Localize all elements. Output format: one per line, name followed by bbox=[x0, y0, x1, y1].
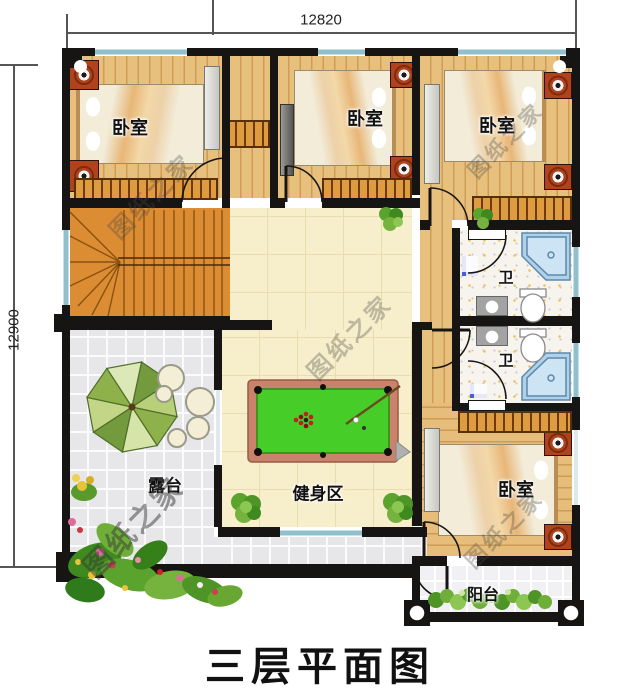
window bbox=[280, 527, 362, 537]
wall-segment bbox=[222, 56, 230, 198]
corner-block bbox=[54, 314, 66, 332]
shelf-cabinet bbox=[424, 84, 440, 184]
room-label-bedroom-1: 卧室 bbox=[112, 114, 148, 140]
shelf-cabinet bbox=[204, 66, 220, 150]
wall-segment bbox=[412, 330, 422, 526]
wall-segment bbox=[452, 403, 468, 411]
vanity-sink bbox=[476, 326, 508, 346]
room-label-gym: 健身区 bbox=[293, 480, 344, 505]
wall-segment bbox=[222, 198, 230, 208]
wall-segment bbox=[572, 297, 580, 343]
dimension-width-label: 12820 bbox=[300, 12, 342, 29]
room-label-bathroom-2: 卫 bbox=[498, 350, 513, 371]
balcony-column bbox=[558, 600, 584, 626]
wardrobe bbox=[322, 178, 412, 200]
wall-segment bbox=[452, 316, 572, 326]
wall-segment bbox=[420, 220, 430, 230]
wall-segment bbox=[214, 465, 222, 527]
dimension-height-label: 12900 bbox=[6, 309, 23, 351]
wall-segment bbox=[62, 305, 70, 578]
wall-segment bbox=[506, 403, 580, 411]
wall-segment bbox=[270, 56, 278, 198]
corridor-floor bbox=[422, 330, 452, 406]
dimension-tick bbox=[575, 0, 577, 48]
door-leaf bbox=[468, 400, 506, 411]
wall-segment bbox=[412, 56, 420, 195]
room-label-bathroom-1: 卫 bbox=[498, 267, 513, 288]
window bbox=[458, 48, 566, 56]
window bbox=[572, 247, 580, 297]
wall-segment bbox=[214, 330, 222, 390]
corner-post-notch bbox=[553, 60, 566, 73]
dimension-tick bbox=[66, 14, 68, 48]
nightstand bbox=[544, 430, 572, 456]
dimension-tick bbox=[0, 64, 38, 66]
shelf-cabinet bbox=[424, 428, 440, 512]
wall-segment bbox=[412, 612, 580, 622]
plan-title: 三层平面图 bbox=[205, 634, 435, 692]
bath-mat bbox=[462, 256, 478, 276]
window bbox=[95, 48, 187, 56]
wardrobe bbox=[472, 196, 572, 222]
balcony-column bbox=[404, 600, 430, 626]
room-label-bedroom-2: 卧室 bbox=[347, 105, 383, 131]
floor-plan-page: 12820 12900 bbox=[0, 0, 640, 700]
dimension-line-top bbox=[66, 32, 576, 34]
nightstand bbox=[544, 524, 572, 550]
window bbox=[572, 430, 580, 505]
terrace-floor bbox=[214, 537, 427, 564]
wall-segment bbox=[362, 527, 427, 537]
window bbox=[318, 48, 365, 56]
wall-segment bbox=[270, 198, 285, 208]
shelf-cabinet bbox=[280, 104, 294, 176]
window bbox=[62, 230, 70, 305]
dimension-tick bbox=[212, 0, 214, 35]
window bbox=[572, 343, 580, 397]
wall-segment bbox=[214, 320, 272, 330]
bath-mat bbox=[470, 384, 487, 398]
vanity-sink bbox=[476, 296, 508, 316]
staircase-floor bbox=[70, 208, 230, 316]
room-label-balcony: 阳台 bbox=[467, 581, 499, 605]
wall-segment bbox=[572, 48, 580, 247]
dimension-tick bbox=[0, 566, 56, 568]
wall-segment bbox=[572, 397, 580, 430]
wardrobe bbox=[458, 411, 572, 433]
nightstand bbox=[544, 72, 572, 99]
door-leaf bbox=[468, 229, 506, 240]
wall-segment bbox=[322, 198, 420, 208]
nightstand bbox=[544, 164, 572, 190]
wall-segment bbox=[412, 322, 432, 330]
wall-segment bbox=[218, 527, 280, 537]
wall-segment bbox=[62, 316, 230, 330]
window bbox=[214, 390, 222, 465]
wardrobe bbox=[226, 120, 270, 148]
corner-post-notch bbox=[74, 60, 87, 73]
